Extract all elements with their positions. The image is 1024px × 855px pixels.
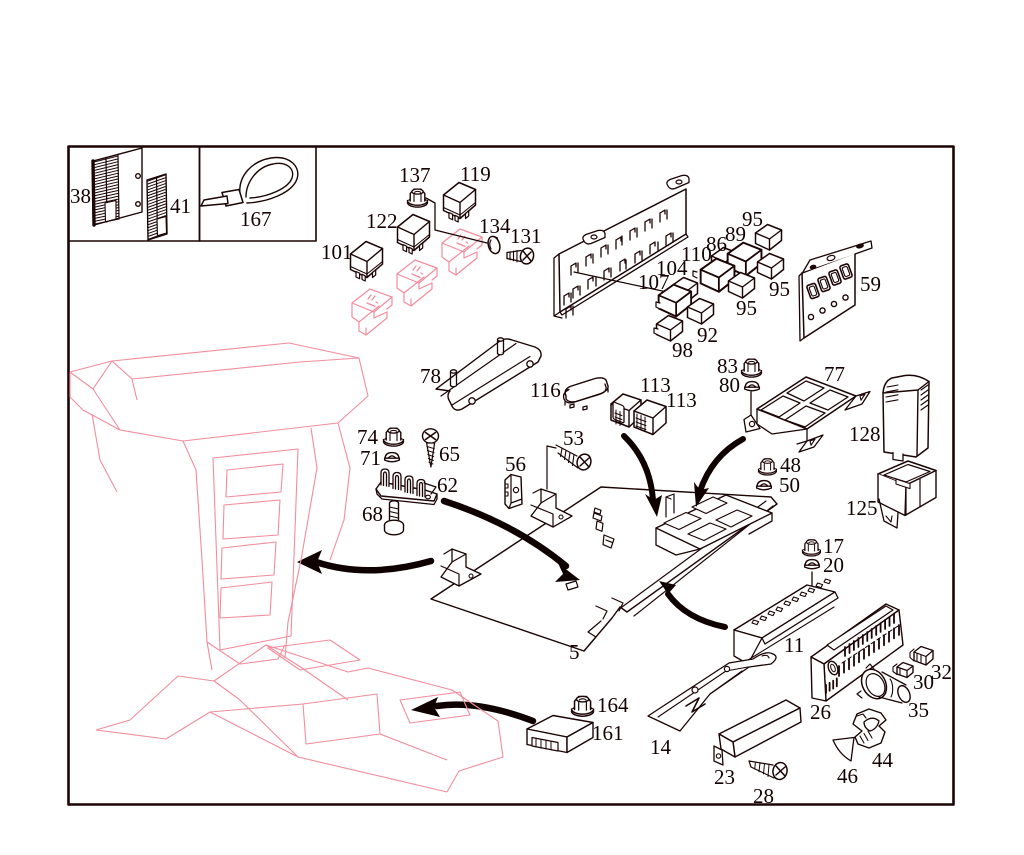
svg-text:78: 78 xyxy=(420,364,441,388)
svg-text:50: 50 xyxy=(779,473,800,497)
svg-text:95: 95 xyxy=(736,296,757,320)
svg-text:128: 128 xyxy=(849,422,881,446)
svg-text:134: 134 xyxy=(479,214,511,238)
svg-text:5: 5 xyxy=(569,640,580,664)
svg-text:14: 14 xyxy=(650,735,672,759)
svg-text:68: 68 xyxy=(362,502,383,526)
svg-text:41: 41 xyxy=(170,194,191,218)
svg-text:116: 116 xyxy=(530,378,561,402)
svg-text:77: 77 xyxy=(824,362,845,386)
svg-text:71: 71 xyxy=(360,446,381,470)
svg-text:161: 161 xyxy=(592,721,624,745)
svg-text:56: 56 xyxy=(505,452,526,476)
svg-text:122: 122 xyxy=(366,209,398,233)
svg-text:167: 167 xyxy=(240,207,272,231)
svg-text:53: 53 xyxy=(563,426,584,450)
svg-text:80: 80 xyxy=(719,373,740,397)
svg-text:35: 35 xyxy=(908,698,929,722)
svg-text:98: 98 xyxy=(672,338,693,362)
svg-text:95: 95 xyxy=(769,277,790,301)
svg-text:92: 92 xyxy=(697,323,718,347)
svg-text:95: 95 xyxy=(742,207,763,231)
svg-text:101: 101 xyxy=(321,240,353,264)
svg-text:23: 23 xyxy=(714,765,735,789)
svg-text:44: 44 xyxy=(872,748,894,772)
svg-text:62: 62 xyxy=(437,473,458,497)
svg-text:65: 65 xyxy=(439,442,460,466)
svg-text:59: 59 xyxy=(860,272,881,296)
svg-text:46: 46 xyxy=(837,764,858,788)
svg-text:38: 38 xyxy=(70,184,91,208)
svg-text:30: 30 xyxy=(913,670,934,694)
svg-text:131: 131 xyxy=(510,224,542,248)
svg-text:125: 125 xyxy=(846,496,878,520)
svg-text:164: 164 xyxy=(597,693,629,717)
svg-text:20: 20 xyxy=(823,553,844,577)
svg-text:119: 119 xyxy=(460,162,491,186)
svg-text:28: 28 xyxy=(753,784,774,808)
svg-text:113: 113 xyxy=(666,388,697,412)
svg-text:32: 32 xyxy=(931,660,952,684)
svg-text:11: 11 xyxy=(784,633,804,657)
svg-text:107: 107 xyxy=(638,270,670,294)
svg-text:137: 137 xyxy=(399,163,431,187)
svg-text:26: 26 xyxy=(810,700,831,724)
